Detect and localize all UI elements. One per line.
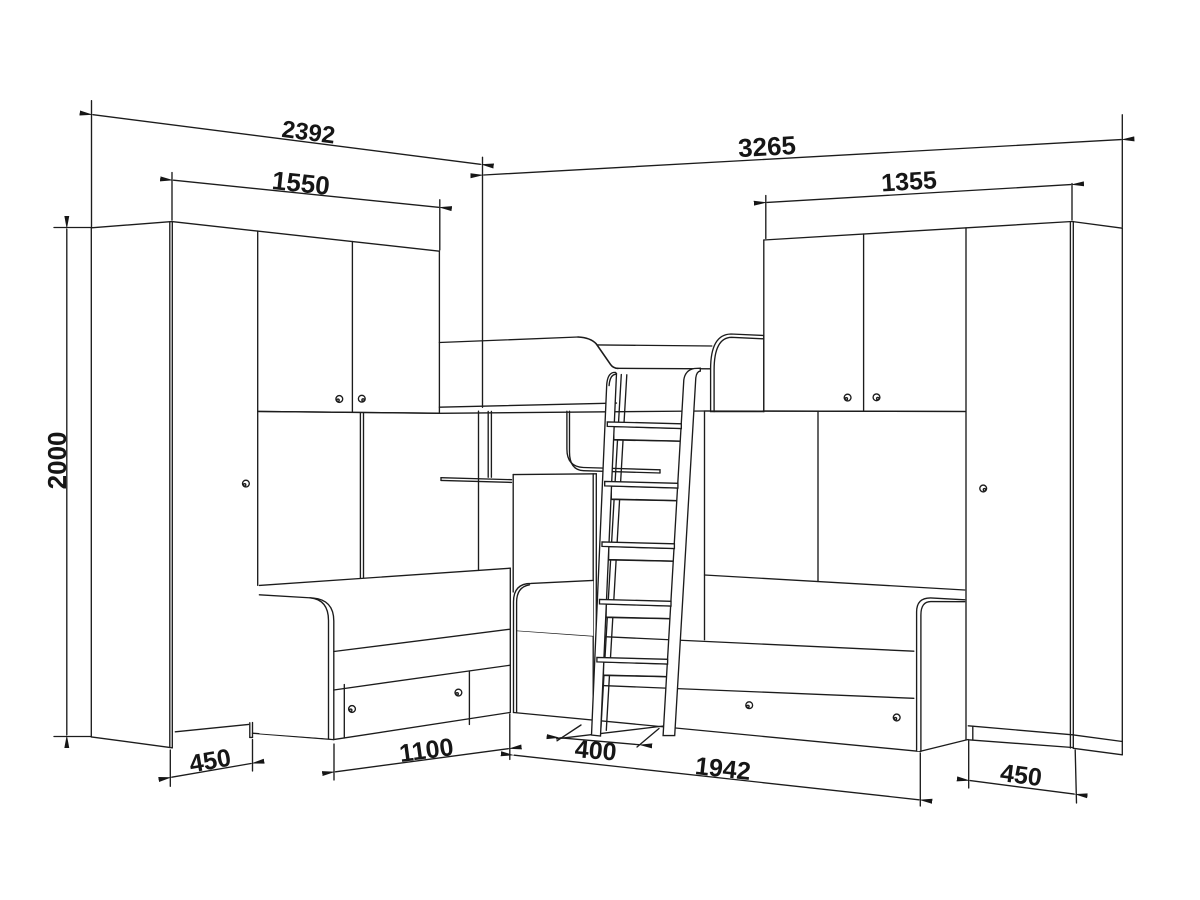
svg-text:1355: 1355 [880, 166, 937, 197]
svg-text:2000: 2000 [42, 431, 72, 489]
svg-text:450: 450 [999, 759, 1044, 792]
svg-text:1550: 1550 [271, 165, 332, 201]
svg-text:1942: 1942 [694, 752, 752, 786]
svg-text:1100: 1100 [398, 733, 455, 768]
svg-text:3265: 3265 [737, 130, 796, 163]
svg-text:2392: 2392 [280, 116, 336, 150]
svg-text:450: 450 [187, 744, 233, 779]
